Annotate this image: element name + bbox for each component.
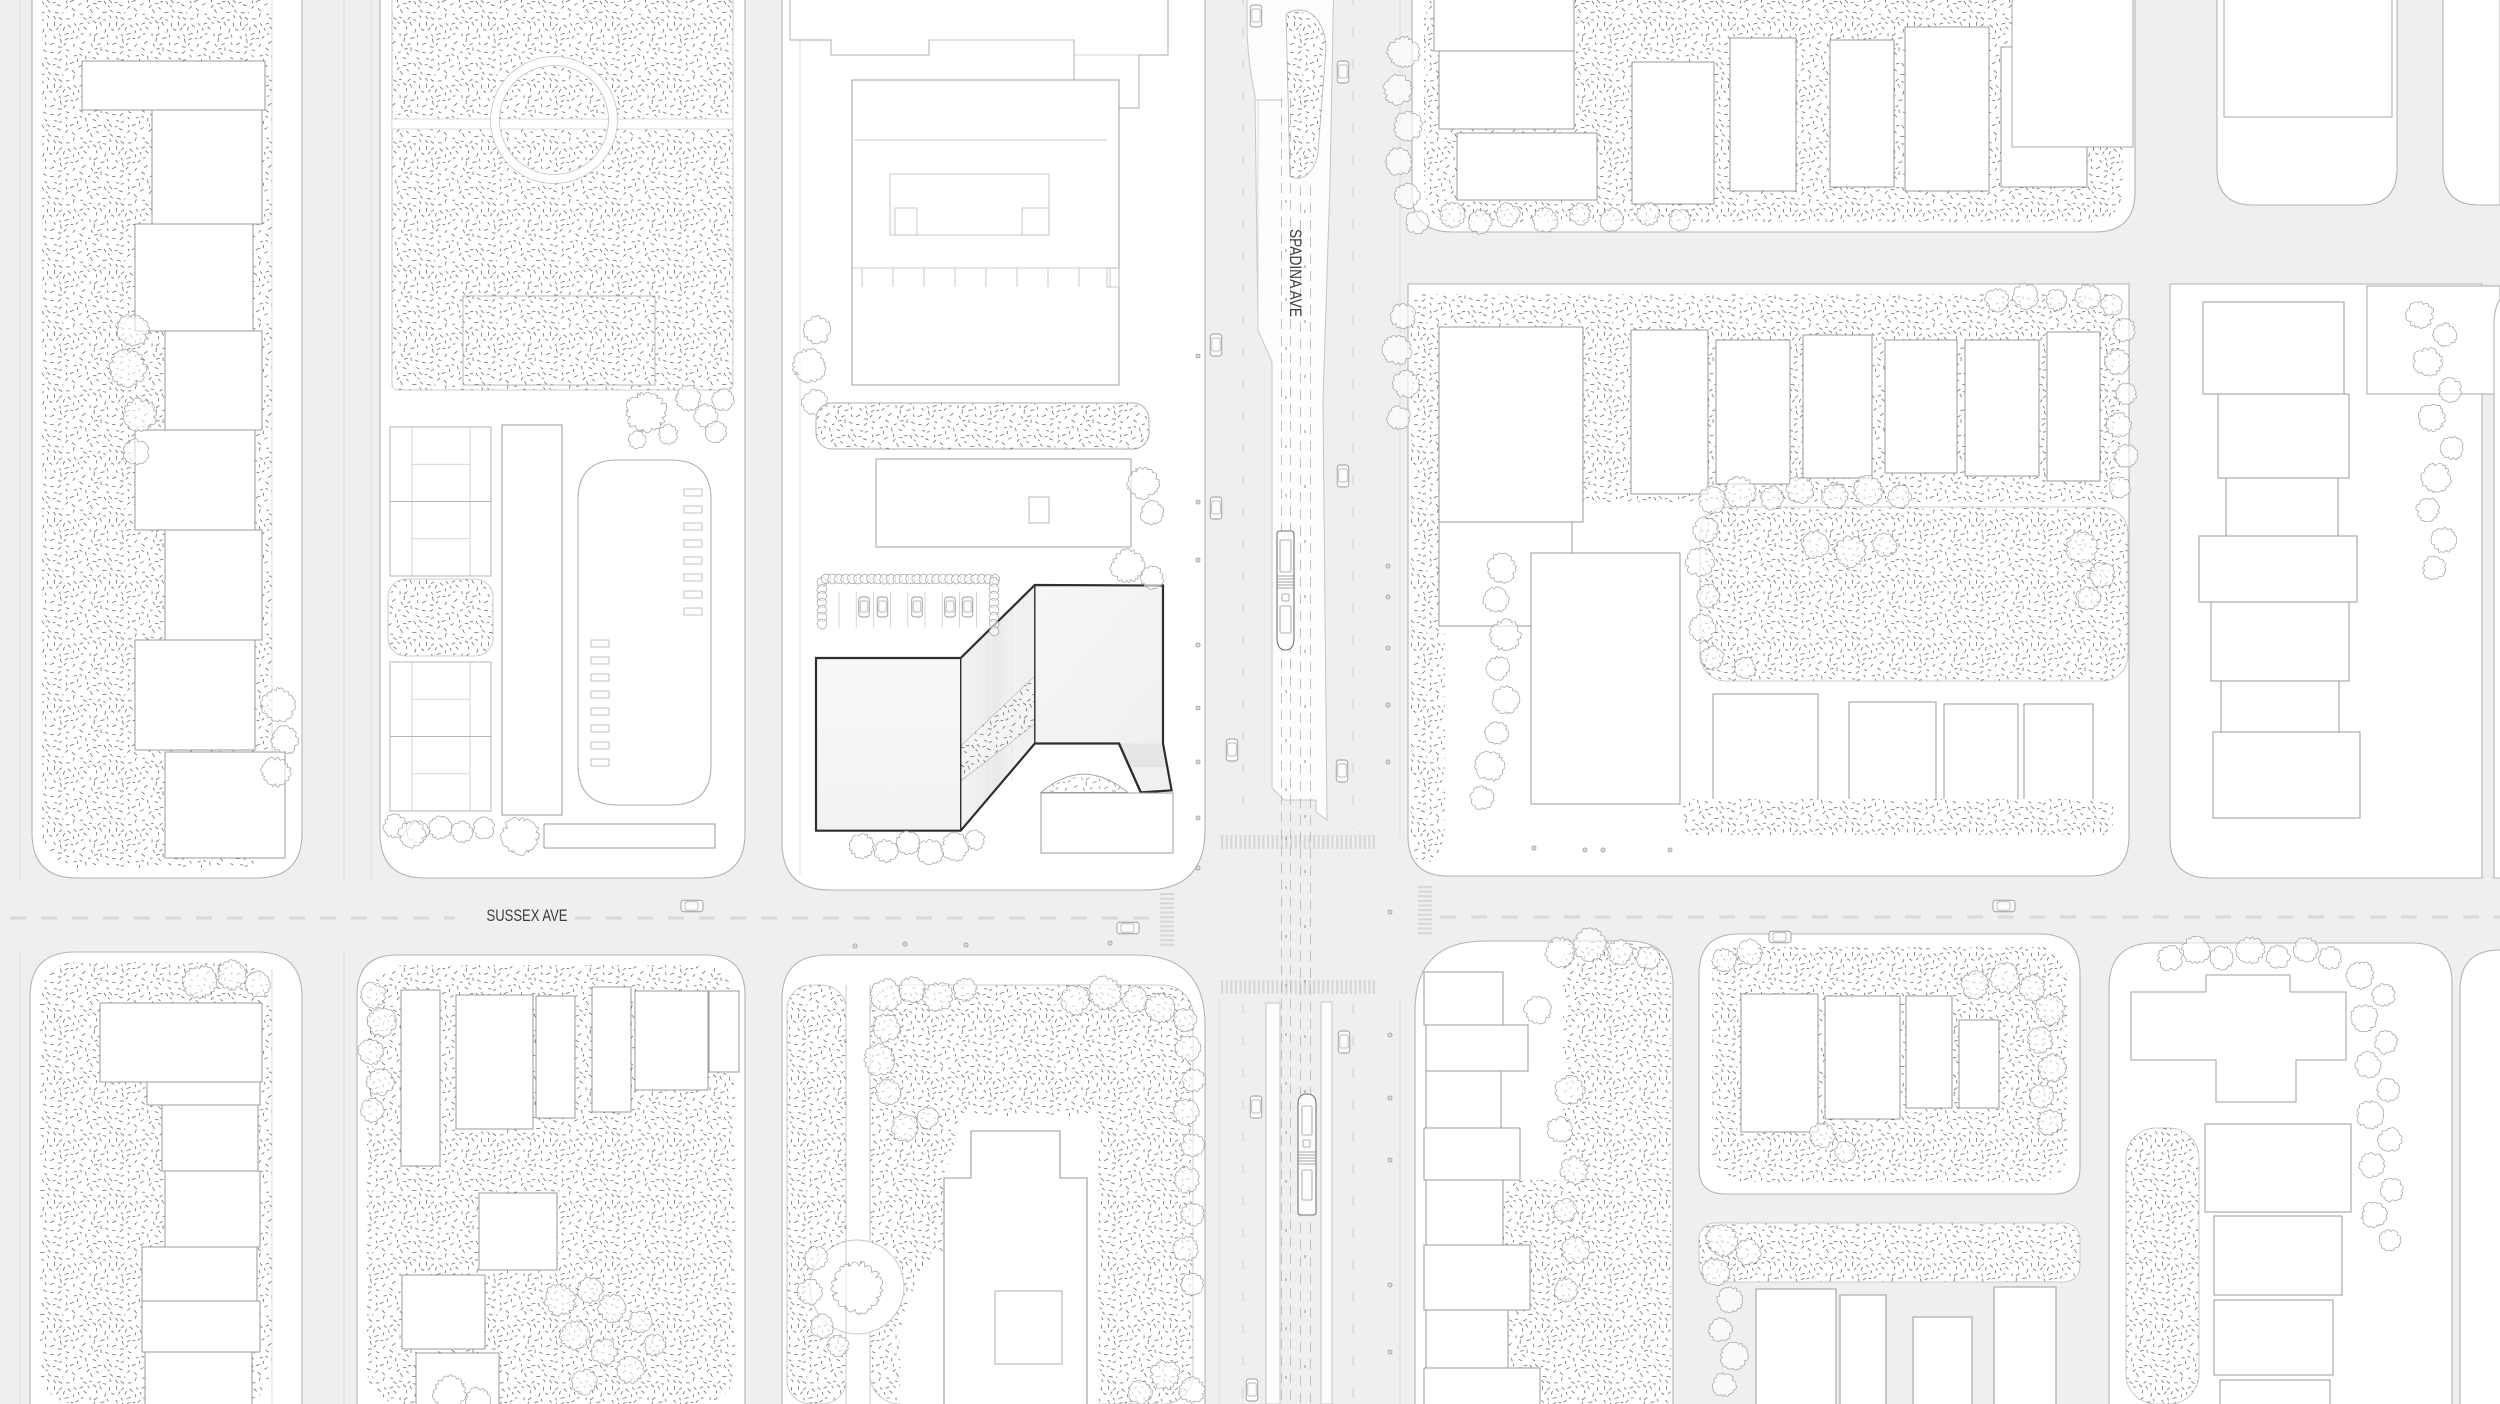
svg-text:SPADINA AVE: SPADINA AVE [1286, 229, 1305, 317]
svg-text:SUSSEX AVE: SUSSEX AVE [487, 907, 568, 925]
